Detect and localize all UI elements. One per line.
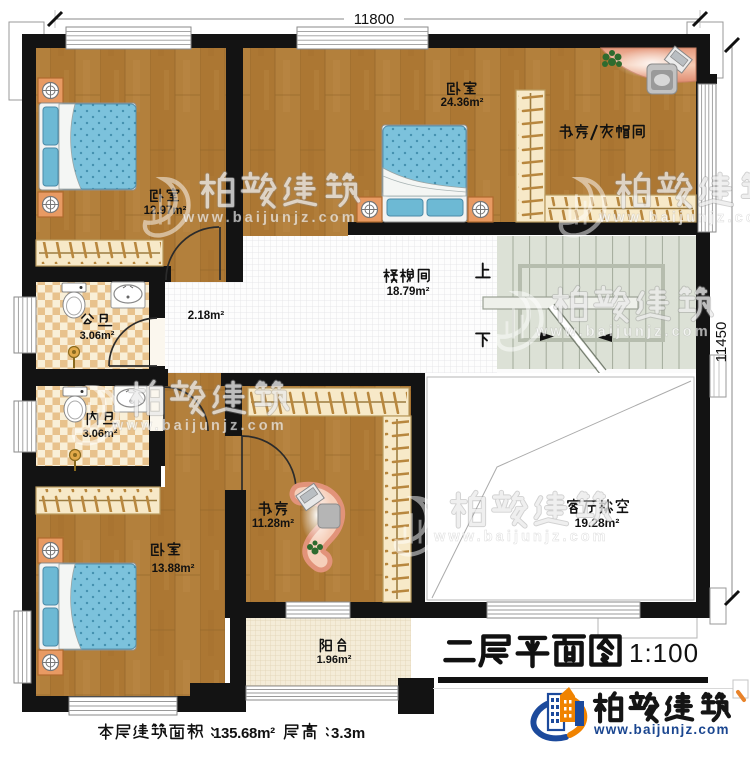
svg-text:2.18m²: 2.18m² (188, 310, 225, 322)
svg-text:www.baijunjz.com: www.baijunjz.com (535, 324, 711, 340)
svg-text:24.36m²: 24.36m² (441, 97, 484, 109)
svg-text:12.97m²: 12.97m² (144, 205, 187, 217)
svg-text:135.68m²: 135.68m² (213, 725, 275, 742)
svg-text:13.88m²: 13.88m² (152, 563, 195, 575)
svg-text:11.28m²: 11.28m² (252, 518, 294, 530)
svg-text:www.baijunjz.com: www.baijunjz.com (593, 722, 730, 737)
svg-text:11450: 11450 (713, 322, 730, 363)
svg-text:18.79m²: 18.79m² (387, 286, 430, 298)
svg-text:3.3m: 3.3m (331, 725, 365, 742)
svg-text:11800: 11800 (354, 11, 395, 28)
svg-text:1.96m²: 1.96m² (317, 654, 352, 666)
svg-text:3.06m²: 3.06m² (80, 330, 115, 342)
svg-text:www.baijunjz.com: www.baijunjz.com (433, 529, 609, 545)
svg-text:www.baijunjz.com: www.baijunjz.com (111, 418, 287, 434)
svg-text:www.baijunjz.com: www.baijunjz.com (182, 210, 358, 226)
svg-text:1:100: 1:100 (629, 638, 699, 668)
svg-text:www.baijunjz.com: www.baijunjz.com (598, 210, 750, 226)
